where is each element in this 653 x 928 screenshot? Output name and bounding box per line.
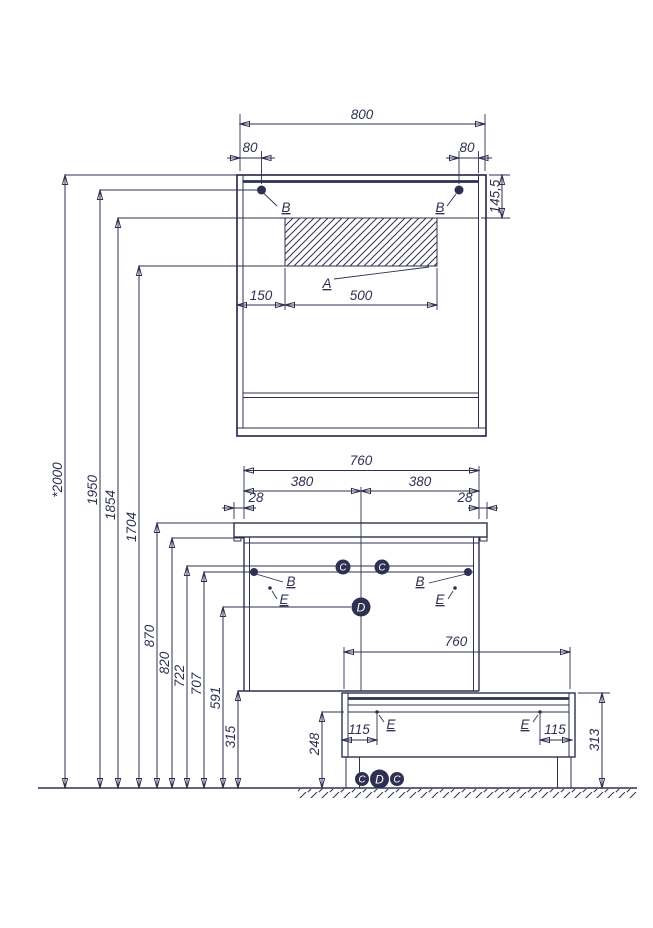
- dim-height-591: 591: [208, 687, 223, 710]
- leader-B-right: [447, 194, 456, 206]
- dim-vanity-half-left: 380: [291, 474, 314, 489]
- callout-E-left: E: [279, 592, 289, 607]
- dim-panel-offset: 150: [250, 288, 273, 303]
- dim-base-width: 760: [445, 634, 468, 649]
- callout-C-floor-left: C: [358, 775, 366, 786]
- dim-vanity-overhang-left: 28: [247, 490, 264, 505]
- point-E-right: [538, 710, 542, 714]
- floor: [38, 788, 637, 798]
- dim-height-2000: *2000: [50, 462, 65, 498]
- dim-height-1854: 1854: [103, 490, 118, 520]
- vanity-front-view: B B C C D E E: [234, 487, 487, 691]
- dim-vanity-overhang-right: 28: [456, 490, 473, 505]
- mounting-point-B-left: [250, 568, 258, 576]
- mounting-point-B-right: [455, 186, 464, 195]
- point-E-right: [453, 586, 457, 590]
- dim-vanity-half-right: 380: [409, 474, 432, 489]
- callout-D: D: [357, 601, 366, 615]
- callout-B-left: B: [281, 200, 290, 215]
- callout-B-left: B: [286, 574, 295, 589]
- dim-panel-width: 500: [350, 288, 373, 303]
- leader-A: [334, 267, 429, 279]
- callout-E-right: E: [435, 592, 445, 607]
- leader-B-left: [264, 193, 278, 206]
- dim-vanity-width: 760: [350, 453, 373, 468]
- floor-hatching: [298, 789, 637, 798]
- point-E-left: [268, 586, 272, 590]
- dim-height-315: 315: [223, 725, 238, 748]
- base-unit-dimensions: 760 115 115 313: [342, 634, 610, 788]
- dim-height-1950: 1950: [85, 474, 100, 505]
- leader-B-right: [429, 574, 466, 583]
- callout-D-floor: D: [375, 773, 384, 787]
- dim-height-1704: 1704: [124, 512, 139, 542]
- callout-E-left: E: [386, 717, 396, 732]
- callout-E-right: E: [520, 717, 530, 732]
- dim-base-height: 313: [587, 728, 602, 751]
- callout-C-right: C: [378, 563, 386, 574]
- installation-drawing: B B A 800 80 80 145,5 150 500: [0, 0, 653, 928]
- mirror-cabinet-dimensions: 800 80 80 145,5 150 500: [227, 107, 510, 310]
- dim-height-870: 870: [142, 624, 157, 647]
- callout-B-right: B: [435, 200, 444, 215]
- callout-C-left: C: [339, 563, 347, 574]
- dim-mirror-offset-left: 80: [242, 140, 258, 155]
- light-panel-hatch-A: [285, 218, 437, 266]
- vanity-dimensions: 760 380 380 28 28: [222, 453, 498, 519]
- countertop: [234, 523, 487, 537]
- dim-height-248: 248: [307, 732, 322, 756]
- dim-base-inset-left: 115: [348, 722, 370, 737]
- callout-C-floor-right: C: [393, 775, 401, 786]
- callout-B-right: B: [415, 574, 424, 589]
- leader-E-right: [533, 715, 538, 722]
- dim-top-section-height: 145,5: [488, 179, 503, 213]
- leader-B-left: [256, 574, 283, 582]
- leader-E-right: [448, 591, 453, 599]
- dim-mirror-offset-right: 80: [459, 140, 475, 155]
- dim-mirror-width: 800: [351, 107, 374, 122]
- dim-height-722: 722: [172, 664, 187, 687]
- leader-E-left: [272, 591, 277, 599]
- dim-height-707: 707: [189, 672, 204, 695]
- point-E-left: [375, 710, 379, 714]
- leader-E-left: [379, 715, 384, 722]
- dim-height-820: 820: [157, 651, 172, 674]
- mounting-point-B-right: [464, 568, 472, 576]
- callout-A: A: [321, 276, 331, 291]
- dim-base-inset-right: 115: [544, 722, 566, 737]
- mounting-point-B-left: [257, 186, 266, 195]
- drawing-page: B B A 800 80 80 145,5 150 500: [0, 0, 653, 928]
